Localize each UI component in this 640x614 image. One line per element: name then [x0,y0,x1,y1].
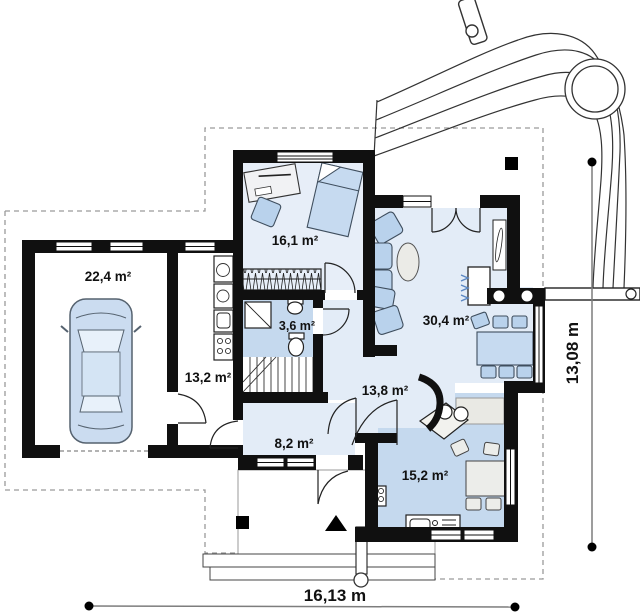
coffee-table [397,243,419,281]
window [287,458,314,467]
toilet [289,333,305,356]
width-dimension-label: 16,13 m [304,586,366,605]
roundabout-inner-circle [572,66,618,112]
vestibule-area-label: 8,2 m² [274,436,314,451]
staircase [243,357,313,392]
bathroom-sink [288,299,304,314]
hall-area-label: 13,8 m² [362,383,409,398]
porch-step [203,554,435,567]
utility-vestibule-door [210,421,238,448]
garage-utility-door [178,394,206,423]
living-area-label: 30,4 m² [423,313,470,328]
dimension-right: 13,08 m [563,158,597,552]
shower [245,302,271,328]
site-marker-square [505,157,518,170]
kitchen-area-label: 15,2 m² [402,468,449,483]
porch-step [210,567,435,580]
utility-appliances [214,256,233,360]
window [403,196,431,207]
bathroom-area-label: 3,6 m² [279,319,315,333]
gate-post [458,0,488,45]
window [535,306,543,383]
dimension-bottom: 16,13 m [85,586,520,612]
window [506,449,515,505]
window [56,242,92,251]
tv-plant-unit [493,220,506,270]
car [61,299,141,443]
porch-column-square [236,516,249,529]
window [110,242,143,251]
window [431,530,461,540]
window [185,242,215,251]
window [257,458,284,467]
utility-area-label: 13,2 m² [185,370,232,385]
wardrobe [243,269,321,290]
study-area-label: 16,1 m² [272,233,319,248]
floor-plan-canvas: 16,13 m 13,08 m [0,0,640,614]
height-dimension-label: 13,08 m [563,322,582,384]
window [277,152,333,162]
drain-circle [354,573,368,587]
window [464,530,494,540]
garage-area-label: 22,4 m² [85,269,132,284]
